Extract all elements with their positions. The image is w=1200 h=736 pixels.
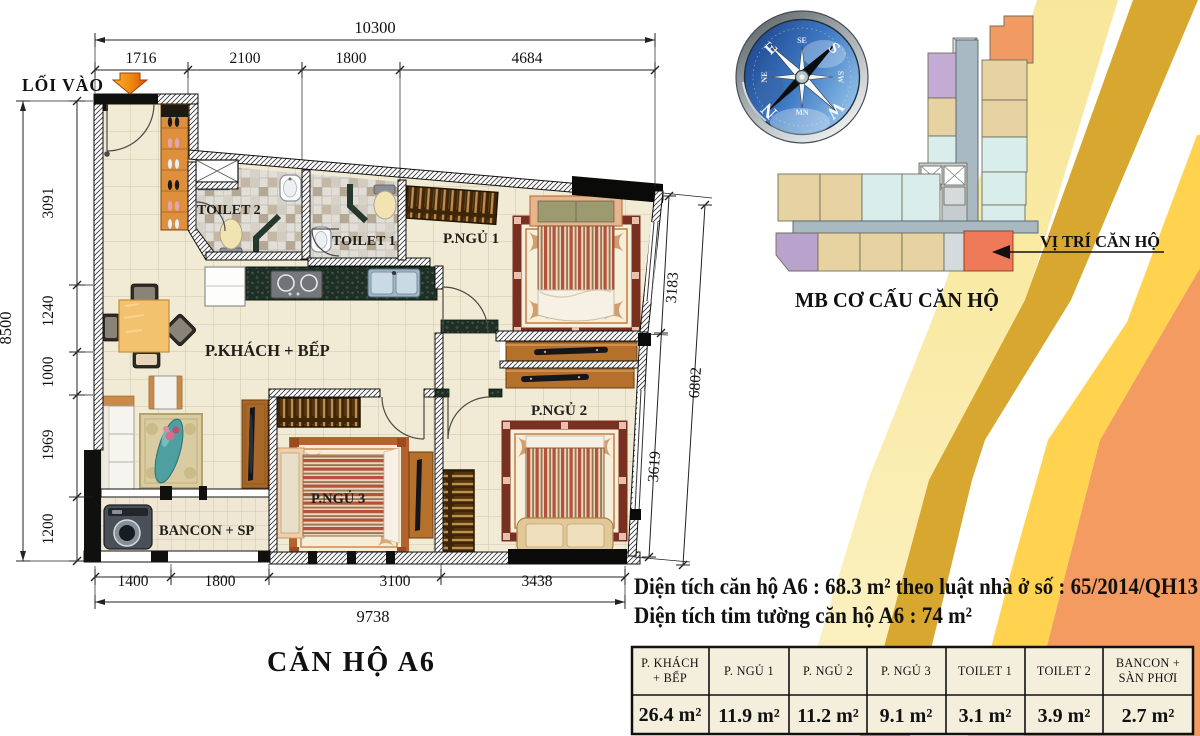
- svg-text:+ BẾP: + BẾP: [653, 670, 687, 685]
- svg-text:P. KHÁCH: P. KHÁCH: [641, 656, 699, 670]
- svg-text:9.1 m²: 9.1 m²: [880, 705, 933, 727]
- svg-text:1969: 1969: [40, 429, 57, 460]
- svg-text:9738: 9738: [357, 607, 390, 626]
- svg-text:VỊ TRÍ CĂN HỘ: VỊ TRÍ CĂN HỘ: [1040, 232, 1160, 251]
- svg-text:BANCON +: BANCON +: [1116, 656, 1180, 670]
- svg-text:3091: 3091: [40, 188, 57, 219]
- svg-text:1800: 1800: [205, 573, 236, 590]
- svg-text:3.9 m²: 3.9 m²: [1038, 705, 1091, 727]
- svg-text:P. NGỦ 3: P. NGỦ 3: [881, 664, 931, 678]
- svg-text:P.KHÁCH + BẾP: P.KHÁCH + BẾP: [205, 341, 330, 360]
- svg-text:2100: 2100: [230, 50, 261, 67]
- svg-text:3183: 3183: [663, 271, 682, 303]
- svg-text:1240: 1240: [40, 295, 57, 326]
- svg-text:8500: 8500: [0, 312, 15, 345]
- svg-text:BANCON + SP: BANCON + SP: [159, 523, 254, 539]
- svg-text:NE: NE: [760, 71, 769, 82]
- svg-text:3438: 3438: [522, 573, 553, 590]
- svg-text:TOILET 1: TOILET 1: [958, 664, 1012, 678]
- svg-text:SE: SE: [797, 36, 807, 45]
- svg-text:SW: SW: [836, 71, 845, 83]
- svg-text:MN: MN: [795, 108, 809, 117]
- svg-text:CĂN HỘ A6: CĂN HỘ A6: [267, 647, 436, 678]
- svg-text:MB CƠ CẤU CĂN HỘ: MB CƠ CẤU CĂN HỘ: [795, 288, 999, 312]
- svg-text:1200: 1200: [40, 513, 57, 544]
- svg-text:2.7 m²: 2.7 m²: [1122, 705, 1175, 727]
- svg-text:26.4 m²: 26.4 m²: [639, 704, 702, 726]
- svg-text:10300: 10300: [354, 18, 395, 37]
- svg-text:11.9 m²: 11.9 m²: [718, 705, 780, 727]
- svg-text:1000: 1000: [40, 356, 57, 387]
- svg-text:1716: 1716: [126, 50, 157, 67]
- svg-text:3619: 3619: [645, 450, 664, 482]
- svg-text:Diện tích tim tường căn hộ A6: Diện tích tim tường căn hộ A6 : 74 m²: [634, 603, 972, 628]
- svg-text:6802: 6802: [686, 367, 705, 399]
- svg-text:TOILET 1: TOILET 1: [332, 234, 396, 249]
- svg-text:TOILET 2: TOILET 2: [1037, 664, 1091, 678]
- svg-text:Diện tích căn hộ A6 : 68.3 m²: Diện tích căn hộ A6 : 68.3 m² theo luật …: [634, 574, 1198, 599]
- svg-text:1800: 1800: [336, 50, 367, 67]
- svg-text:SÀN PHƠI: SÀN PHƠI: [1119, 671, 1178, 685]
- svg-text:LỐI VÀO: LỐI VÀO: [22, 75, 104, 95]
- svg-text:11.2 m²: 11.2 m²: [797, 705, 859, 727]
- svg-text:3100: 3100: [380, 573, 411, 590]
- svg-text:P.NGỦ 1: P.NGỦ 1: [443, 230, 499, 247]
- svg-text:4684: 4684: [512, 50, 543, 67]
- svg-text:TOILET 2: TOILET 2: [197, 203, 261, 218]
- svg-text:P.NGỦ 3: P.NGỦ 3: [311, 490, 365, 507]
- svg-text:P.NGỦ 2: P.NGỦ 2: [531, 402, 587, 419]
- svg-text:P. NGỦ 1: P. NGỦ 1: [724, 664, 774, 678]
- svg-text:P. NGỦ 2: P. NGỦ 2: [803, 664, 853, 678]
- svg-text:3.1 m²: 3.1 m²: [959, 705, 1012, 727]
- svg-text:1400: 1400: [118, 573, 149, 590]
